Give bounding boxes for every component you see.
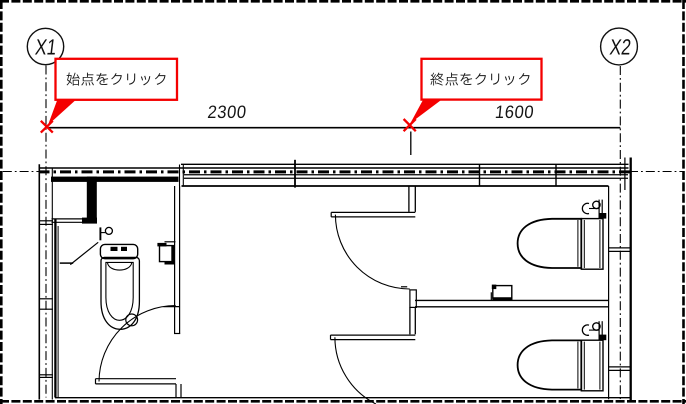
svg-text:X2: X2 <box>608 36 632 60</box>
svg-text:2300: 2300 <box>207 102 248 123</box>
svg-text:X1: X1 <box>34 36 58 60</box>
svg-text:1600: 1600 <box>494 102 535 123</box>
